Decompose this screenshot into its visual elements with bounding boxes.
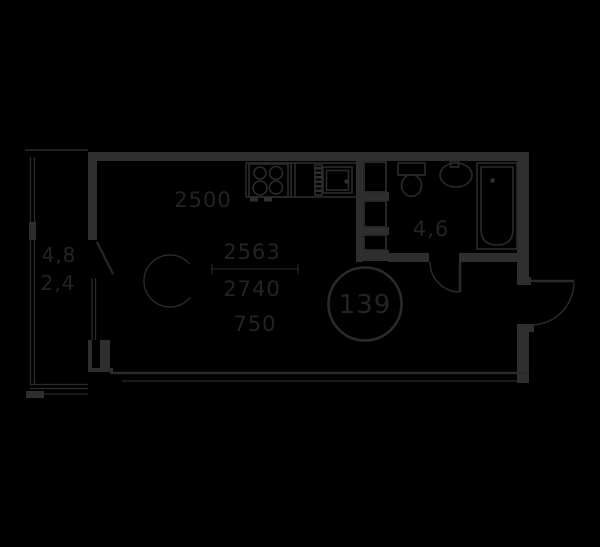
- bathroom-door-arc: [430, 262, 460, 292]
- entry-door-frame-top: [517, 277, 531, 285]
- entry-door-arc: [531, 282, 574, 325]
- balcony-door-leaf: [97, 242, 113, 274]
- walls: [26, 152, 534, 398]
- dimension-line: [212, 264, 298, 274]
- room-dimension-top-label: 2563: [223, 240, 280, 264]
- duct-shaft-icon: [364, 162, 386, 250]
- bathroom-door-swing-icon: [430, 262, 460, 292]
- wall-right-upper: [517, 152, 529, 278]
- doors: [430, 262, 574, 325]
- room-dimension-middle-label: 2740: [223, 277, 280, 301]
- table-dimension-label: 750: [233, 312, 276, 336]
- dish-rack-icon: [314, 165, 323, 195]
- balcony-area-label: 4,8: [42, 243, 77, 267]
- bathtub-outer: [477, 163, 517, 249]
- bathtub-inner: [481, 167, 513, 245]
- bathtub-icon: [477, 163, 517, 249]
- toilet-tank: [398, 163, 425, 175]
- balcony-area-reduced-label: 2,4: [41, 271, 76, 295]
- cabinet-handle-1: [250, 198, 258, 202]
- entry-door-swing-icon: [531, 281, 574, 325]
- shaft-fill-1: [361, 192, 389, 201]
- toilet-bowl: [402, 175, 422, 197]
- burner-top-left: [254, 167, 266, 179]
- shaft-box-2: [364, 201, 386, 227]
- burner-bottom-left: [253, 181, 267, 195]
- wall-divider-block-b: [100, 340, 110, 368]
- washbasin-icon: [440, 161, 472, 187]
- burner-bottom-right: [270, 181, 283, 194]
- shaft-box-3: [364, 235, 386, 250]
- stove-icon: [249, 164, 288, 197]
- dining-table-icon: [144, 255, 190, 307]
- kitchen-counter: [246, 163, 360, 197]
- wall-divider-cap: [88, 368, 113, 372]
- wall-balcony-divider-upper: [88, 152, 97, 240]
- cabinet-handle-2: [264, 198, 272, 202]
- shaft-box-1: [364, 162, 386, 192]
- floorplan-page: 2500 2563 2740 750 4,6 4,8 2,4 139: [0, 0, 600, 547]
- floorplan-drawing: 2500 2563 2740 750 4,6 4,8 2,4 139: [0, 0, 600, 547]
- burner-top-right: [270, 167, 283, 180]
- toilet-icon: [398, 163, 425, 196]
- wall-bathroom-south-west: [388, 253, 429, 262]
- bathtub-faucet: [490, 178, 495, 183]
- window-bottom: [110, 373, 529, 381]
- annotation-labels: 2500 2563 2740 750 4,6 4,8 2,4 139: [41, 188, 450, 336]
- wall-top: [88, 152, 529, 161]
- shaft-fill-2: [361, 227, 389, 235]
- wall-right-lower: [517, 332, 529, 383]
- sink-faucet: [344, 179, 348, 183]
- wall-divider-block-a: [88, 340, 92, 368]
- kitchen-sink-icon: [323, 167, 352, 193]
- unit-number-label: 139: [339, 290, 392, 320]
- wall-bathroom-south-east: [459, 253, 517, 262]
- bathroom-area-label: 4,6: [413, 217, 449, 241]
- kitchen-dimension-label: 2500: [174, 188, 231, 212]
- shaft-fill-3: [361, 250, 389, 261]
